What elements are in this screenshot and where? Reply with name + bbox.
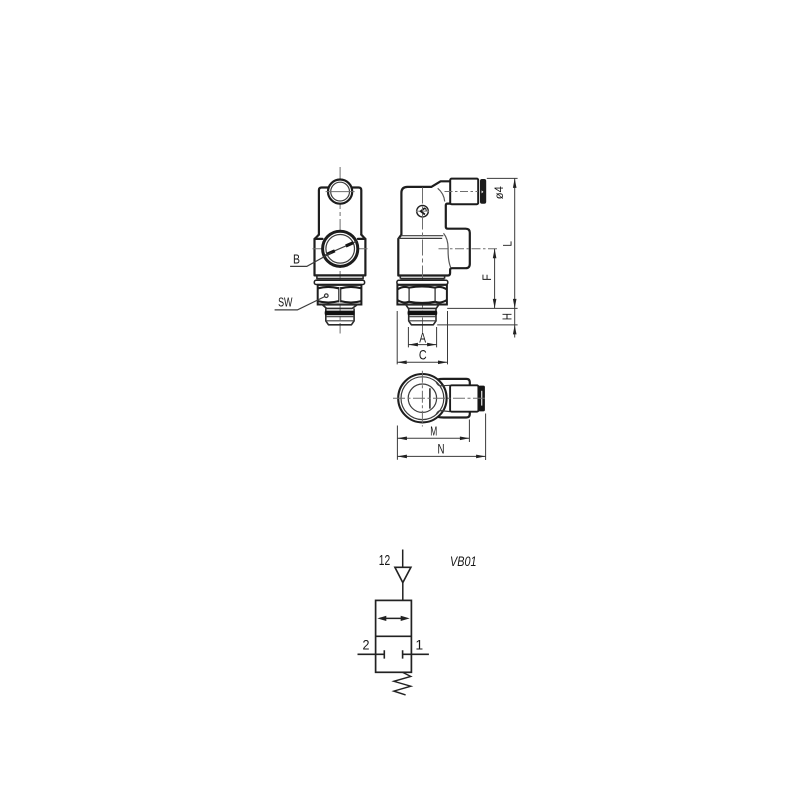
svg-text:A: A: [419, 331, 426, 346]
svg-text:F: F: [480, 274, 494, 281]
svg-text:B: B: [293, 251, 300, 266]
svg-text:C: C: [419, 347, 427, 363]
svg-text:SW: SW: [278, 295, 293, 310]
svg-text:L: L: [501, 241, 515, 247]
svg-text:12: 12: [379, 552, 390, 569]
svg-text:N: N: [438, 441, 445, 456]
svg-text:H: H: [500, 313, 515, 320]
svg-text:VB01: VB01: [450, 554, 477, 569]
svg-text:1: 1: [415, 637, 423, 653]
svg-text:2: 2: [363, 637, 370, 653]
svg-text:M: M: [430, 424, 437, 439]
svg-text:ø4: ø4: [492, 186, 506, 199]
